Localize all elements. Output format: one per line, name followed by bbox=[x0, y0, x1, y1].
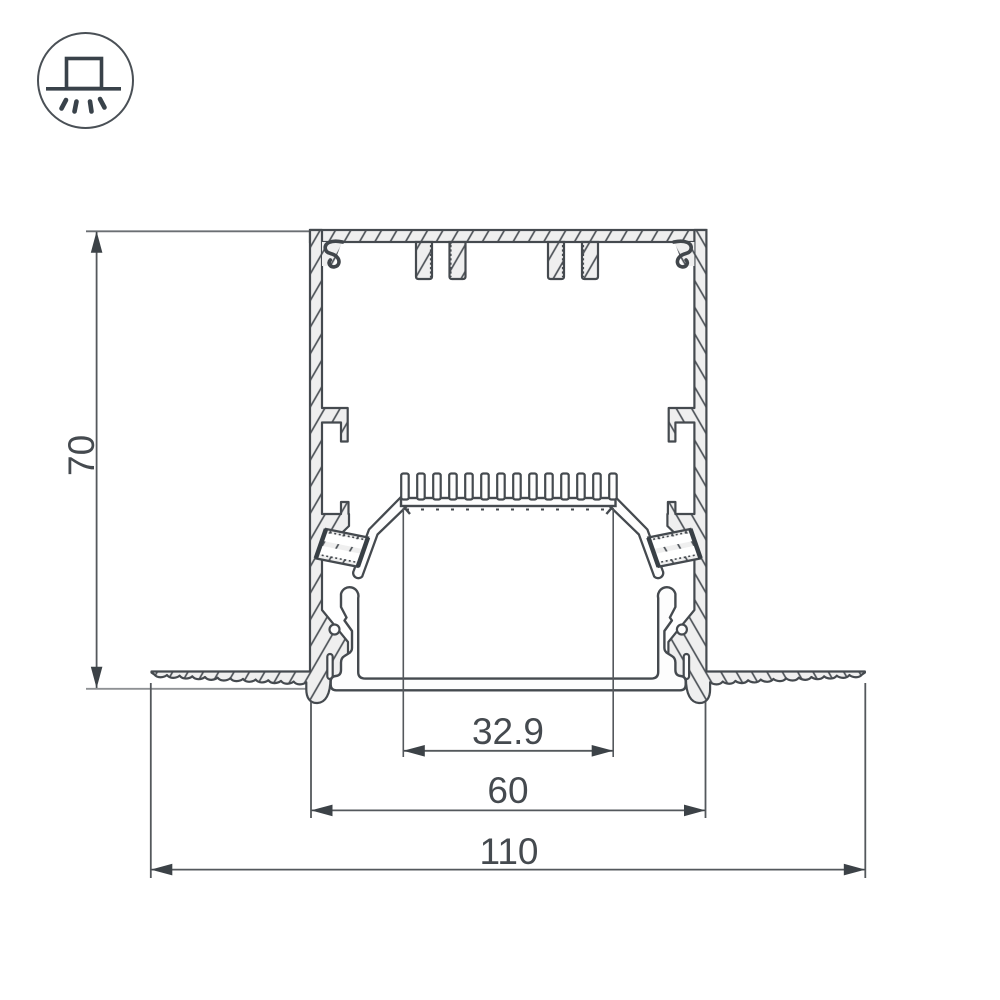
svg-text:60: 60 bbox=[487, 770, 528, 811]
svg-text:70: 70 bbox=[61, 435, 102, 476]
svg-text:32.9: 32.9 bbox=[472, 711, 544, 752]
svg-text:110: 110 bbox=[480, 831, 539, 872]
